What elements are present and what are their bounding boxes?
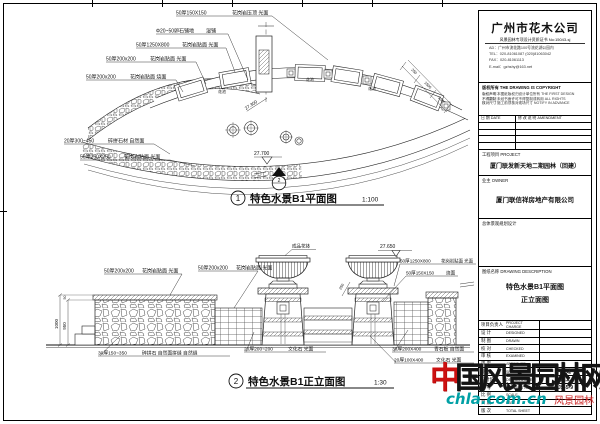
fold-mark-tick — [302, 0, 303, 7]
description-label: 图纸名称 DRAWING DESCRIPTION — [479, 267, 591, 275]
signature-row: 设 计 DESIGNED — [479, 330, 591, 338]
sign-value: 园 建 — [539, 368, 591, 375]
callout-material: 青石板 自然面 — [434, 346, 464, 353]
elevation-value: 27.700 — [254, 151, 270, 157]
signature-row: 比 例 SCALE — [479, 392, 591, 400]
callout-spec: 20厚100X400 — [394, 358, 424, 364]
signature-row: 项目负责人 PROJECT CHARGE — [479, 321, 591, 330]
callout-material: 碎拼石材 自然面 — [108, 138, 144, 145]
dimension-text: 250 — [410, 68, 417, 75]
callout-material: 花岗岩贴面 光面 — [124, 154, 160, 161]
callout-material: 花岗岩贴面 烧面 — [130, 74, 166, 81]
revision-row — [479, 123, 591, 130]
sign-value — [539, 392, 591, 399]
urn-label: 成品花钵 — [285, 243, 316, 256]
signature-row: 设计阶段 DESIGN STAGE 施工 — [479, 376, 591, 384]
owner-label: 业主 OWNER — [479, 176, 591, 184]
drawing-sheet: 27.700 27.300 2 250 — [0, 0, 600, 424]
caption-title: 特色水景B1平面图 — [250, 192, 337, 205]
sign-value: JS-5-9 — [539, 384, 591, 391]
planning-label: 总体景观规划设计 — [479, 219, 591, 227]
project-name: 厦门联发新天地二期园林（回建） — [479, 161, 591, 170]
sign-en: DESIGN STAGE — [506, 376, 539, 383]
planter-box — [174, 77, 207, 101]
stone-wall-left — [93, 295, 217, 345]
company-name: 广州市花木公司 — [479, 20, 591, 36]
elevation-value: 27.650 — [380, 244, 396, 250]
address-line: FAX：020-81061113 — [489, 58, 591, 63]
callout-spec: 50厚200x200 — [198, 266, 228, 272]
sign-en: SCALE — [506, 392, 539, 399]
tile-wall-right — [394, 302, 428, 345]
callout-material: 烧面 — [446, 270, 456, 277]
callout-spec: 50厚150X150 — [176, 11, 207, 17]
sign-cn: 设 计 — [479, 330, 506, 337]
sign-en: DRAWING NO. — [506, 384, 539, 391]
dimension-text: 950 — [62, 322, 67, 330]
center-pillar — [256, 22, 274, 104]
sign-en: SPECIALTY — [506, 368, 539, 375]
sign-value — [539, 353, 591, 360]
callout-material: 碎拼石 自然面拼缝 自然缝 — [142, 350, 198, 357]
sign-cn: 比 例 — [479, 392, 506, 399]
revision-header: 日 期 DATE 修 改 说 明 AMENDMENT — [479, 116, 591, 123]
callout-spec: 50厚150X150 — [406, 271, 435, 277]
sign-cn: 专 业 — [479, 368, 506, 375]
drawing-caption-1: 1 特色水景B1平面图 1:100 — [231, 191, 384, 205]
dimension-text: 250 — [338, 283, 345, 290]
sign-en: TOTAL SHEET — [506, 407, 539, 414]
fold-mark-tick — [92, 0, 93, 7]
signature-row: 日 期 DATE — [479, 400, 591, 408]
project-label: 工程项目 PROJECT — [479, 150, 591, 158]
callout-spec: 30厚200X400 — [392, 347, 422, 353]
signature-row: 专 业 SPECIALTY 园 建 — [479, 368, 591, 376]
callout-material: 湿铺 — [206, 28, 216, 35]
callout-material: 花岗岩贴面 光面 — [142, 268, 178, 275]
sign-cn: 校 对 — [479, 345, 506, 352]
drawing-title-line1: 特色水景B1平面图 — [479, 282, 591, 292]
signature-row: 版 次 TOTAL SHEET — [479, 407, 591, 414]
planter-box — [370, 73, 403, 96]
pedestal — [258, 288, 308, 345]
elevation-marker-27650: 27.650 — [378, 244, 412, 257]
dimension-text: 1000 — [54, 318, 59, 329]
signature-row: 校 对 CHECKED — [479, 345, 591, 353]
plan-view-drawing: 27.700 27.300 2 250 — [10, 8, 472, 214]
sign-cn: 制 图 — [479, 338, 506, 345]
address-line: E-mail：gzhshy@163.net — [489, 65, 591, 70]
address-line: TEL：020-81061087 (020)81063042 — [489, 52, 591, 57]
caption-number: 1 — [236, 194, 241, 203]
sign-value — [539, 330, 591, 337]
owner-name: 厦门联信祥房地产有限公司 — [479, 194, 591, 204]
caption-title: 特色水景B1正立面图 — [248, 375, 345, 388]
callout-spec: 50厚1250X800 — [400, 259, 431, 265]
callout-material: 文化石 光面 — [436, 357, 462, 364]
signature-table: 项目负责人 PROJECT CHARGE 设 计 DESIGNED 制 图 DR… — [479, 321, 591, 414]
revision-table: 日 期 DATE 修 改 说 明 AMENDMENT — [479, 116, 591, 150]
sign-en: EXAMINED — [506, 353, 539, 360]
sign-en: DESIGNED — [506, 330, 539, 337]
sign-en: CHECKED — [506, 345, 539, 352]
planter-label: 花池 — [368, 85, 376, 91]
sign-value — [539, 361, 591, 368]
left-steps — [75, 326, 95, 345]
callout-spec: 20厚300~450 — [64, 139, 94, 145]
copyright-text: 施工前须核对现场尺寸 NOTIFY IN ADVANCE — [497, 101, 588, 106]
callout-material: 文化石 光面 — [288, 346, 314, 353]
elevation-value: 27.300 — [244, 99, 259, 111]
callout-material: 花岗岩贴面 光面 — [441, 258, 474, 265]
revision-date-header: 日 期 DATE — [479, 116, 516, 122]
caption-scale: 1:30 — [374, 380, 387, 387]
sign-en: APPROVED — [506, 361, 539, 368]
copyright-section: 版权所有 THE DRAWING IS COPYRIGHT 版权声明 本图纸版权… — [479, 83, 591, 116]
fold-mark-tick — [442, 0, 443, 7]
revision-row — [479, 136, 591, 143]
copyright-row: 核对尺寸 施工前须核对现场尺寸 NOTIFY IN ADVANCE — [482, 101, 588, 106]
section-number: 2 — [278, 178, 281, 184]
dimension-label: 1000 — [54, 318, 59, 329]
dimension-label: 50 — [63, 296, 67, 300]
drawing-caption-2: 2 特色水景B1正立面图 1:30 — [229, 374, 394, 388]
copyright-title: 版权所有 THE DRAWING IS COPYRIGHT — [482, 85, 588, 91]
callout-spec: Φ20~50卵石铺地 — [156, 28, 194, 35]
fold-mark-tick — [232, 0, 233, 7]
callout-spec: 50厚250X250 — [80, 155, 111, 161]
dimension-label: 950 — [62, 322, 67, 330]
planter-label: 花池 — [218, 88, 226, 94]
revision-amend-header: 修 改 说 明 AMENDMENT — [516, 116, 591, 122]
dimension-text: 50 — [63, 296, 67, 300]
urn — [346, 256, 400, 289]
caption-scale: 1:100 — [362, 197, 379, 204]
planning-section: 总体景观规划设计 — [479, 219, 591, 267]
sign-en: PROJECT CHARGE — [506, 321, 539, 329]
callout-spec: 30厚150~350 — [98, 351, 127, 357]
callout-spec: 50厚1250X800 — [136, 43, 170, 49]
callout-spec: 20厚200~200 — [244, 347, 273, 353]
address-line: AD：广州市流花路100号流花湖公园内 — [489, 46, 591, 51]
callout-material: 成品花钵 — [292, 243, 310, 250]
caption-number: 2 — [234, 377, 239, 386]
callout-material: 花岗岩贴面 光面 — [236, 265, 272, 272]
signature-row: 图 号 DRAWING NO. JS-5-9 — [479, 384, 591, 392]
sign-cn: 审 核 — [479, 353, 506, 360]
stone-wall-right — [426, 292, 458, 345]
sign-value — [539, 345, 591, 352]
certificate-line: 风景园林专项设计资质证书 No:15043-sj — [485, 37, 585, 44]
fold-mark-tick — [162, 0, 163, 7]
project-section: 工程项目 PROJECT 厦门联发新天地二期园林（回建） — [479, 150, 591, 176]
sign-cn: 项目负责人 — [479, 321, 506, 329]
planter-box — [331, 66, 363, 86]
elevation-drawing: 1000 950 50 — [20, 238, 478, 396]
pebble-band-upper — [88, 79, 260, 140]
pedestal — [348, 288, 398, 345]
sign-value: 施工 — [539, 376, 591, 383]
fold-mark-tick — [372, 0, 373, 7]
sign-value — [539, 321, 591, 329]
sign-en: DATE — [506, 400, 539, 407]
elevation-marker-27300: 27.300 — [244, 94, 267, 112]
fold-mark-tick — [0, 211, 7, 212]
sign-en: DRAWN — [506, 338, 539, 345]
callout-spec: 50厚200x200 — [106, 57, 136, 63]
flower-pot-circle — [225, 120, 303, 145]
tile-wall-middle — [215, 308, 262, 345]
planter-label: 花池 — [306, 76, 314, 82]
revision-row — [479, 130, 591, 137]
callout-spec: 50厚200x200 — [104, 269, 134, 275]
sign-cn: 版 次 — [479, 407, 506, 414]
dimension-label: 250 — [410, 68, 417, 75]
sign-cn: 日 期 — [479, 400, 506, 407]
company-header: 广州市花木公司 风景园林专项设计资质证书 No:15043-sj AD：广州市流… — [479, 11, 591, 83]
sign-value — [539, 407, 591, 414]
callout-material: 花岗岩贴面 光面 — [150, 56, 186, 63]
owner-section: 业主 OWNER 厦门联信祥房地产有限公司 — [479, 176, 591, 219]
callout-material: 花岗岩压顶 光面 — [232, 10, 268, 17]
callout-material: 花岗岩贴面 光面 — [182, 42, 218, 49]
signature-row: 审 核 EXAMINED — [479, 353, 591, 361]
copyright-label: 核对尺寸 — [482, 101, 497, 106]
sign-value — [539, 400, 591, 407]
sign-cn: 设计阶段 — [479, 376, 506, 383]
sign-cn: 图 号 — [479, 384, 506, 391]
sign-cn: 审 定 — [479, 361, 506, 368]
sign-value — [539, 338, 591, 345]
callout-spec: 50厚200x200 — [86, 75, 116, 81]
title-block: 广州市花木公司 风景园林专项设计资质证书 No:15043-sj AD：广州市流… — [478, 10, 592, 415]
elevation-marker-27700: 27.700 — [254, 151, 282, 164]
signature-row: 制 图 DRAWN — [479, 338, 591, 346]
revision-row — [479, 143, 591, 149]
signature-row: 审 定 APPROVED — [479, 361, 591, 369]
drawing-description-section: 图纸名称 DRAWING DESCRIPTION 特色水景B1平面图 正立面图 — [479, 267, 591, 321]
urn — [256, 256, 310, 289]
drawing-title-line2: 正立面图 — [479, 295, 591, 305]
banded-wall-center — [304, 308, 352, 345]
